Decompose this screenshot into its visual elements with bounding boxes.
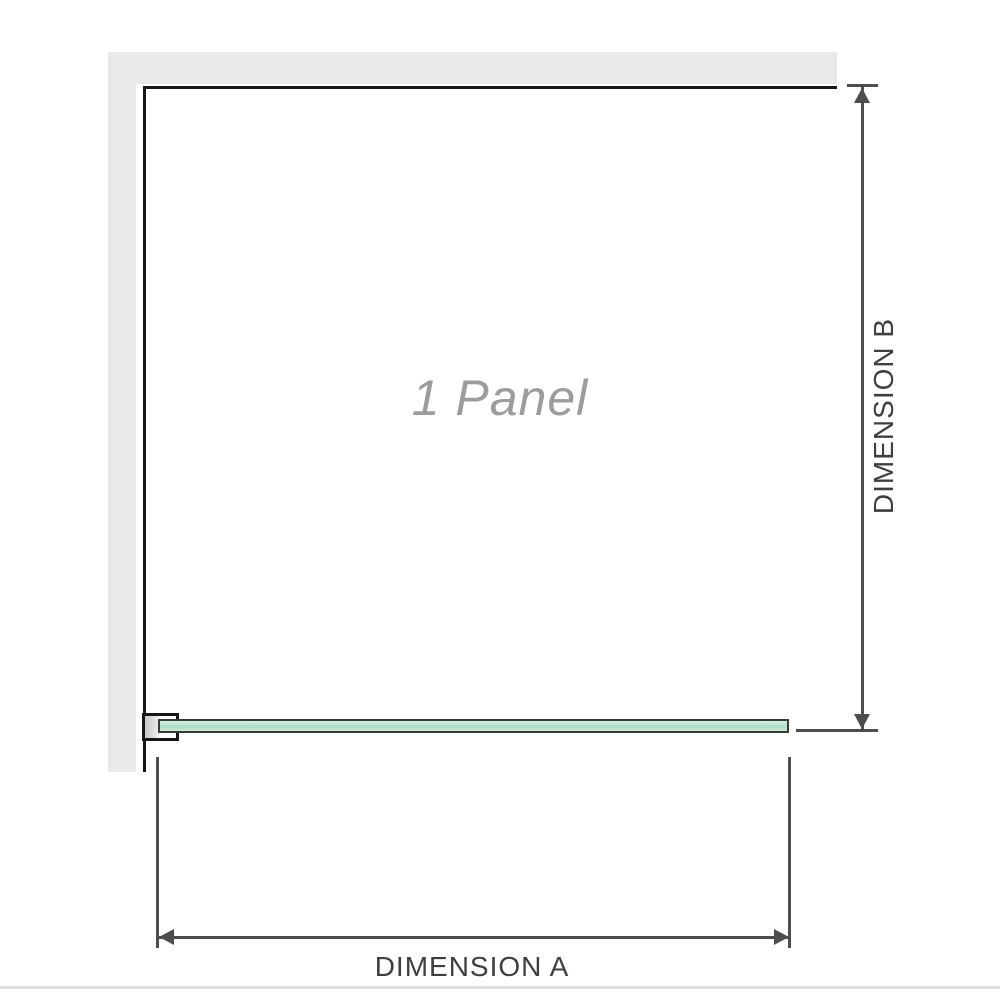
shower-panel-diagram: 1 Panel DIMENSION B DIMENSION A bbox=[0, 0, 1000, 1000]
panel-outline-top bbox=[143, 86, 837, 89]
dimension-b-line bbox=[861, 86, 864, 731]
panel-outline-left bbox=[143, 86, 146, 772]
dimension-a-left-extension bbox=[156, 757, 159, 948]
dimension-b-bottom-tick bbox=[796, 729, 878, 732]
dimension-a-line bbox=[158, 936, 789, 939]
arrow-right-icon bbox=[774, 929, 789, 945]
arrow-up-icon bbox=[854, 88, 870, 103]
wall-left bbox=[108, 52, 136, 772]
wall-top bbox=[108, 52, 837, 84]
image-bottom-edge-line bbox=[0, 986, 1000, 989]
panel-count-label: 1 Panel bbox=[340, 360, 660, 436]
dimension-a-label: DIMENSION A bbox=[375, 951, 570, 983]
dimension-b-label: DIMENSION B bbox=[868, 318, 900, 514]
wall-bracket-pad bbox=[145, 716, 159, 738]
glass-panel bbox=[158, 719, 789, 733]
dimension-b-top-tick bbox=[847, 84, 878, 87]
dimension-a-right-extension bbox=[788, 757, 791, 948]
arrow-down-icon bbox=[854, 714, 870, 729]
arrow-left-icon bbox=[159, 929, 174, 945]
